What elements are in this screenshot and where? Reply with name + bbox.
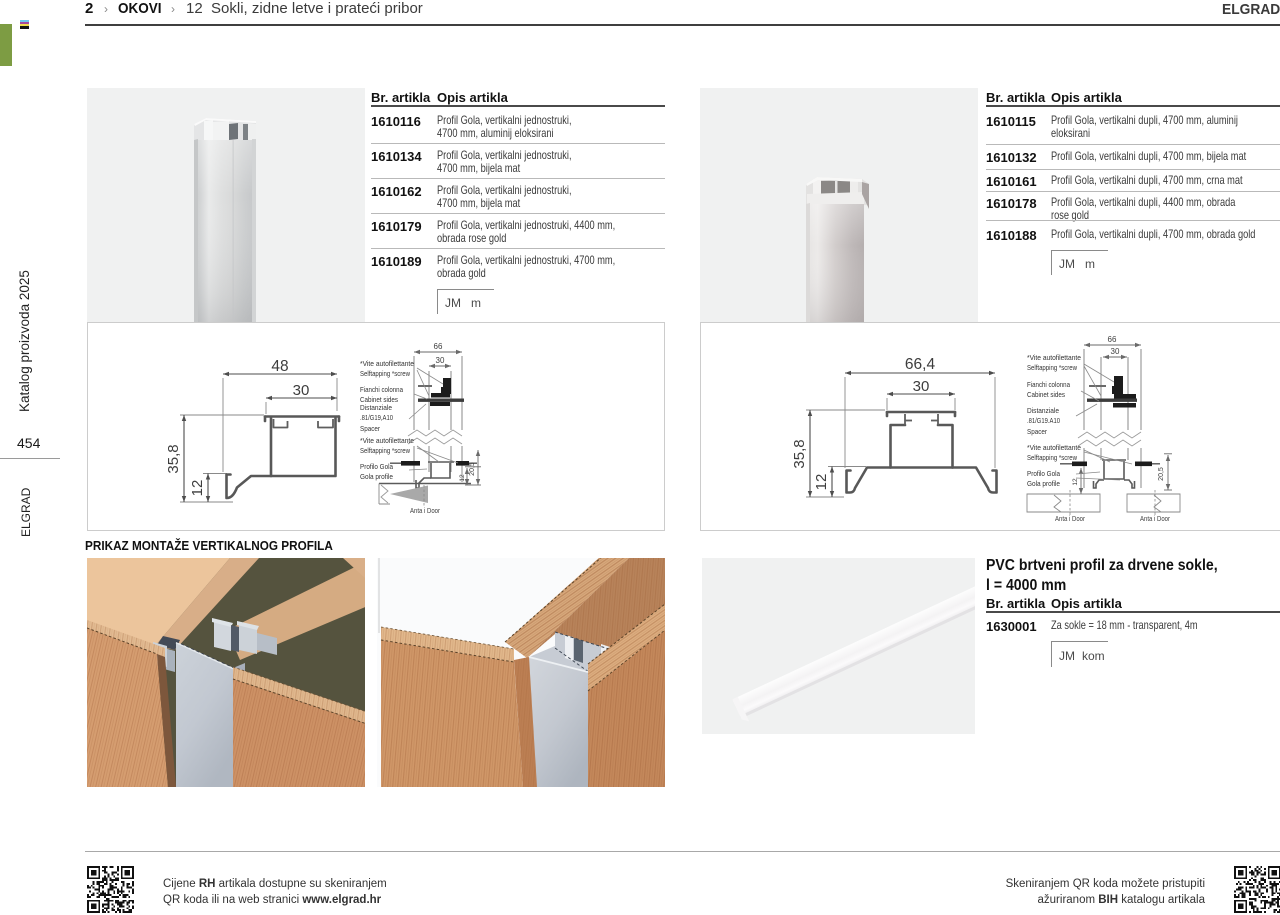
svg-text:Fianchi colonna: Fianchi colonna (360, 385, 404, 394)
svg-text:Distanziale: Distanziale (1027, 406, 1059, 415)
svg-text:Gola profile: Gola profile (1027, 479, 1060, 488)
svg-text:Cabinet sides: Cabinet sides (1027, 390, 1065, 399)
svg-text:12: 12 (189, 480, 206, 497)
svg-text:Anta i Door: Anta i Door (1055, 514, 1085, 523)
svg-text:.81/G19.A10: .81/G19.A10 (1027, 416, 1060, 425)
svg-text:Spacer: Spacer (360, 424, 380, 433)
svg-text:Anta i Door: Anta i Door (410, 506, 440, 515)
svg-text:Anta i Door: Anta i Door (1140, 514, 1170, 523)
svg-text:30: 30 (913, 378, 930, 395)
svg-text:Fianchi colonna: Fianchi colonna (1027, 380, 1071, 389)
svg-text:30: 30 (293, 382, 310, 399)
svg-text:*Vite autofilettante: *Vite autofilettante (1027, 443, 1081, 452)
svg-text:*Vite autofilettante: *Vite autofilettante (360, 359, 414, 368)
svg-text:12: 12 (813, 474, 830, 491)
svg-text:.81/G19,A10: .81/G19,A10 (360, 413, 393, 422)
svg-text:35,8: 35,8 (791, 439, 808, 468)
svg-text:12: 12 (459, 474, 466, 482)
svg-text:Profilo Gola: Profilo Gola (1027, 469, 1061, 478)
svg-text:66,4: 66,4 (905, 356, 936, 373)
svg-text:Profilo Gola: Profilo Gola (360, 462, 394, 471)
svg-text:35,8: 35,8 (165, 444, 182, 473)
svg-text:Selftapping *screw: Selftapping *screw (1027, 453, 1077, 462)
svg-text:Distanziale: Distanziale (360, 403, 392, 412)
svg-text:*Vite autofilettante: *Vite autofilettante (1027, 353, 1081, 362)
svg-text:*Vite autofilettante: *Vite autofilettante (360, 436, 414, 445)
svg-text:12: 12 (1072, 478, 1079, 486)
svg-text:Spacer: Spacer (1027, 427, 1047, 436)
svg-text:20,5: 20,5 (469, 462, 476, 476)
svg-text:Gola profile: Gola profile (360, 472, 393, 481)
svg-text:48: 48 (271, 358, 288, 375)
svg-text:20,5: 20,5 (1158, 467, 1165, 481)
svg-text:Selftapping *screw: Selftapping *screw (360, 369, 410, 378)
svg-text:66: 66 (434, 342, 443, 351)
svg-text:66: 66 (1108, 335, 1117, 344)
svg-text:30: 30 (1111, 347, 1120, 356)
svg-text:30: 30 (436, 356, 445, 365)
svg-text:Selftapping *screw: Selftapping *screw (360, 446, 410, 455)
svg-text:Selftapping *screw: Selftapping *screw (1027, 363, 1077, 372)
